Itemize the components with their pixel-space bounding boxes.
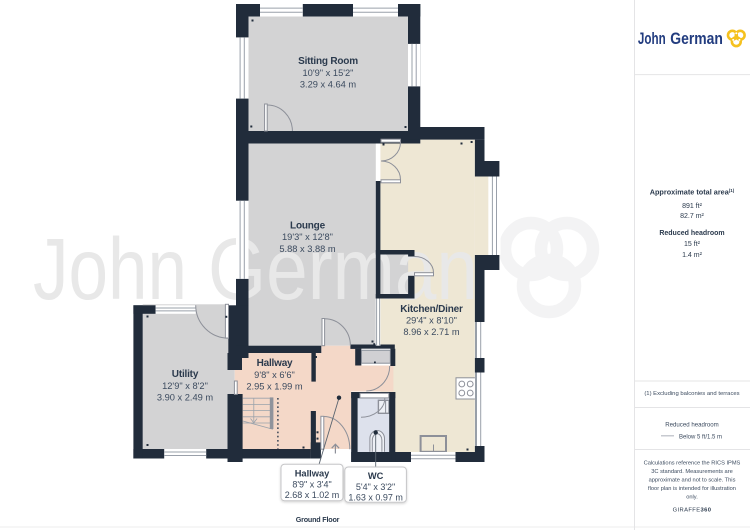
svg-text:3C standard. Measurements are: 3C standard. Measurements are	[651, 469, 733, 475]
svg-text:Utility: Utility	[172, 369, 199, 380]
svg-text:3.29 x 4.64 m: 3.29 x 4.64 m	[300, 79, 357, 89]
svg-text:10'9" x 15'2": 10'9" x 15'2"	[303, 68, 354, 78]
svg-text:29'4" x 8'10": 29'4" x 8'10"	[406, 316, 457, 326]
svg-text:John: John	[638, 30, 666, 48]
svg-text:9'8" x 6'6": 9'8" x 6'6"	[254, 370, 295, 380]
svg-text:891 ft²: 891 ft²	[682, 203, 703, 210]
svg-text:German: German	[670, 30, 723, 48]
svg-text:Approximate total area(1): Approximate total area(1)	[650, 188, 735, 197]
svg-text:15 ft²: 15 ft²	[684, 241, 701, 248]
svg-text:1.4 m²: 1.4 m²	[682, 252, 703, 259]
svg-text:GIRAFFE360: GIRAFFE360	[673, 508, 712, 514]
svg-text:12'9" x 8'2": 12'9" x 8'2"	[162, 381, 208, 391]
svg-text:5.88 x 3.88 m: 5.88 x 3.88 m	[279, 244, 336, 254]
svg-text:Calculations reference the RIC: Calculations reference the RICS IPMS	[644, 461, 741, 467]
svg-text:Lounge: Lounge	[290, 221, 326, 232]
svg-text:John: John	[33, 221, 187, 318]
svg-text:1.63 x 0.97 m: 1.63 x 0.97 m	[348, 492, 403, 502]
svg-text:3.90 x 2.49 m: 3.90 x 2.49 m	[157, 392, 214, 402]
svg-text:Reduced headroom: Reduced headroom	[665, 422, 719, 429]
svg-text:2.68 x 1.02 m: 2.68 x 1.02 m	[285, 490, 340, 500]
svg-text:floor plan is intended for ill: floor plan is intended for illustration	[648, 486, 736, 492]
svg-text:8.96 x 2.71 m: 8.96 x 2.71 m	[403, 327, 460, 337]
svg-text:only.: only.	[686, 495, 698, 501]
svg-text:8'9" x 3'4": 8'9" x 3'4"	[292, 479, 331, 489]
svg-text:Ground Floor: Ground Floor	[296, 515, 340, 524]
svg-text:Hallway: Hallway	[257, 358, 293, 369]
svg-text:Reduced headroom: Reduced headroom	[659, 230, 724, 237]
svg-text:Below 5 ft/1.5 m: Below 5 ft/1.5 m	[679, 434, 722, 440]
svg-text:WC: WC	[368, 471, 384, 481]
svg-text:Hallway: Hallway	[295, 468, 330, 478]
svg-text:5'4" x 3'2": 5'4" x 3'2"	[356, 482, 395, 492]
svg-text:Kitchen/Diner: Kitchen/Diner	[400, 304, 463, 315]
svg-text:19'3" x 12'8": 19'3" x 12'8"	[282, 232, 333, 242]
svg-text:Sitting Room: Sitting Room	[298, 56, 358, 67]
svg-text:82.7 m²: 82.7 m²	[680, 213, 704, 220]
svg-text:approximate and not to scale.: approximate and not to scale. This	[649, 478, 736, 484]
svg-text:(1) Excluding balconies and te: (1) Excluding balconies and terraces	[644, 391, 739, 397]
svg-text:2.95 x 1.99 m: 2.95 x 1.99 m	[246, 381, 303, 391]
